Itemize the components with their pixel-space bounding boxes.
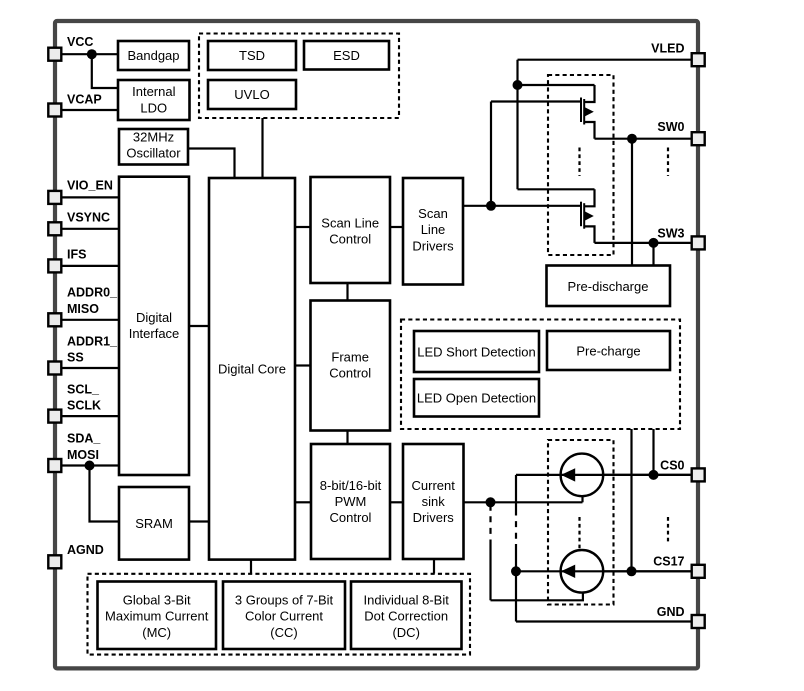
svg-text:SDA_: SDA_ — [67, 432, 101, 446]
svg-text:Drivers: Drivers — [413, 510, 455, 525]
svg-text:CS17: CS17 — [653, 555, 684, 569]
svg-text:Global 3-Bit: Global 3-Bit — [123, 593, 191, 608]
svg-text:Control: Control — [329, 366, 371, 381]
svg-text:SRAM: SRAM — [135, 516, 173, 531]
svg-text:(MC): (MC) — [142, 625, 171, 640]
svg-text:SW3: SW3 — [657, 226, 684, 240]
svg-text:VSYNC: VSYNC — [67, 211, 110, 225]
svg-text:Bandgap: Bandgap — [127, 48, 179, 63]
svg-text:LED Open Detection: LED Open Detection — [417, 391, 536, 406]
svg-text:Internal: Internal — [132, 84, 175, 99]
svg-text:GND: GND — [657, 605, 685, 619]
svg-text:MOSI: MOSI — [67, 448, 99, 462]
svg-text:LDO: LDO — [140, 100, 167, 115]
svg-text:Control: Control — [330, 510, 372, 525]
svg-text:3 Groups of 7-Bit: 3 Groups of 7-Bit — [235, 593, 334, 608]
svg-text:Current: Current — [412, 478, 456, 493]
svg-text:Scan Line: Scan Line — [321, 216, 379, 231]
svg-text:Frame: Frame — [331, 350, 369, 365]
svg-text:VIO_EN: VIO_EN — [67, 179, 113, 193]
svg-text:Dot Correction: Dot Correction — [364, 609, 448, 624]
svg-text:Interface: Interface — [129, 326, 180, 341]
svg-text:Digital: Digital — [136, 310, 172, 325]
svg-text:32MHz: 32MHz — [133, 130, 174, 145]
svg-text:ADDR1_: ADDR1_ — [67, 334, 118, 348]
svg-text:Oscillator: Oscillator — [126, 146, 181, 161]
svg-text:Scan: Scan — [418, 206, 448, 221]
svg-text:SW0: SW0 — [657, 120, 684, 134]
svg-text:PWM: PWM — [335, 494, 367, 509]
svg-text:Pre-charge: Pre-charge — [576, 344, 640, 359]
svg-text:(DC): (DC) — [392, 625, 419, 640]
svg-text:Line: Line — [421, 222, 446, 237]
svg-text:Digital Core: Digital Core — [218, 362, 286, 377]
svg-text:MISO: MISO — [67, 302, 99, 316]
svg-text:(CC): (CC) — [270, 625, 297, 640]
svg-text:Pre-discharge: Pre-discharge — [568, 279, 649, 294]
svg-text:ADDR0_: ADDR0_ — [67, 286, 118, 300]
svg-text:CS0: CS0 — [660, 458, 684, 472]
svg-text:AGND: AGND — [67, 543, 104, 557]
svg-text:LED Short Detection: LED Short Detection — [417, 345, 536, 360]
svg-text:VCC: VCC — [67, 35, 93, 49]
svg-text:sink: sink — [422, 494, 446, 509]
svg-text:IFS: IFS — [67, 248, 86, 262]
svg-text:TSD: TSD — [239, 48, 265, 63]
svg-text:Drivers: Drivers — [412, 238, 454, 253]
svg-text:8-bit/16-bit: 8-bit/16-bit — [320, 478, 382, 493]
svg-text:Individual 8-Bit: Individual 8-Bit — [364, 593, 450, 608]
svg-text:VCAP: VCAP — [67, 93, 102, 107]
svg-text:Color Current: Color Current — [245, 609, 323, 624]
svg-text:SS: SS — [67, 351, 84, 365]
svg-text:SCL_: SCL_ — [67, 383, 100, 397]
svg-text:ESD: ESD — [333, 48, 360, 63]
svg-text:Control: Control — [329, 232, 371, 247]
svg-text:UVLO: UVLO — [234, 87, 269, 102]
svg-text:SCLK: SCLK — [67, 399, 101, 413]
svg-text:VLED: VLED — [651, 42, 684, 56]
svg-text:Maximum Current: Maximum Current — [105, 609, 209, 624]
